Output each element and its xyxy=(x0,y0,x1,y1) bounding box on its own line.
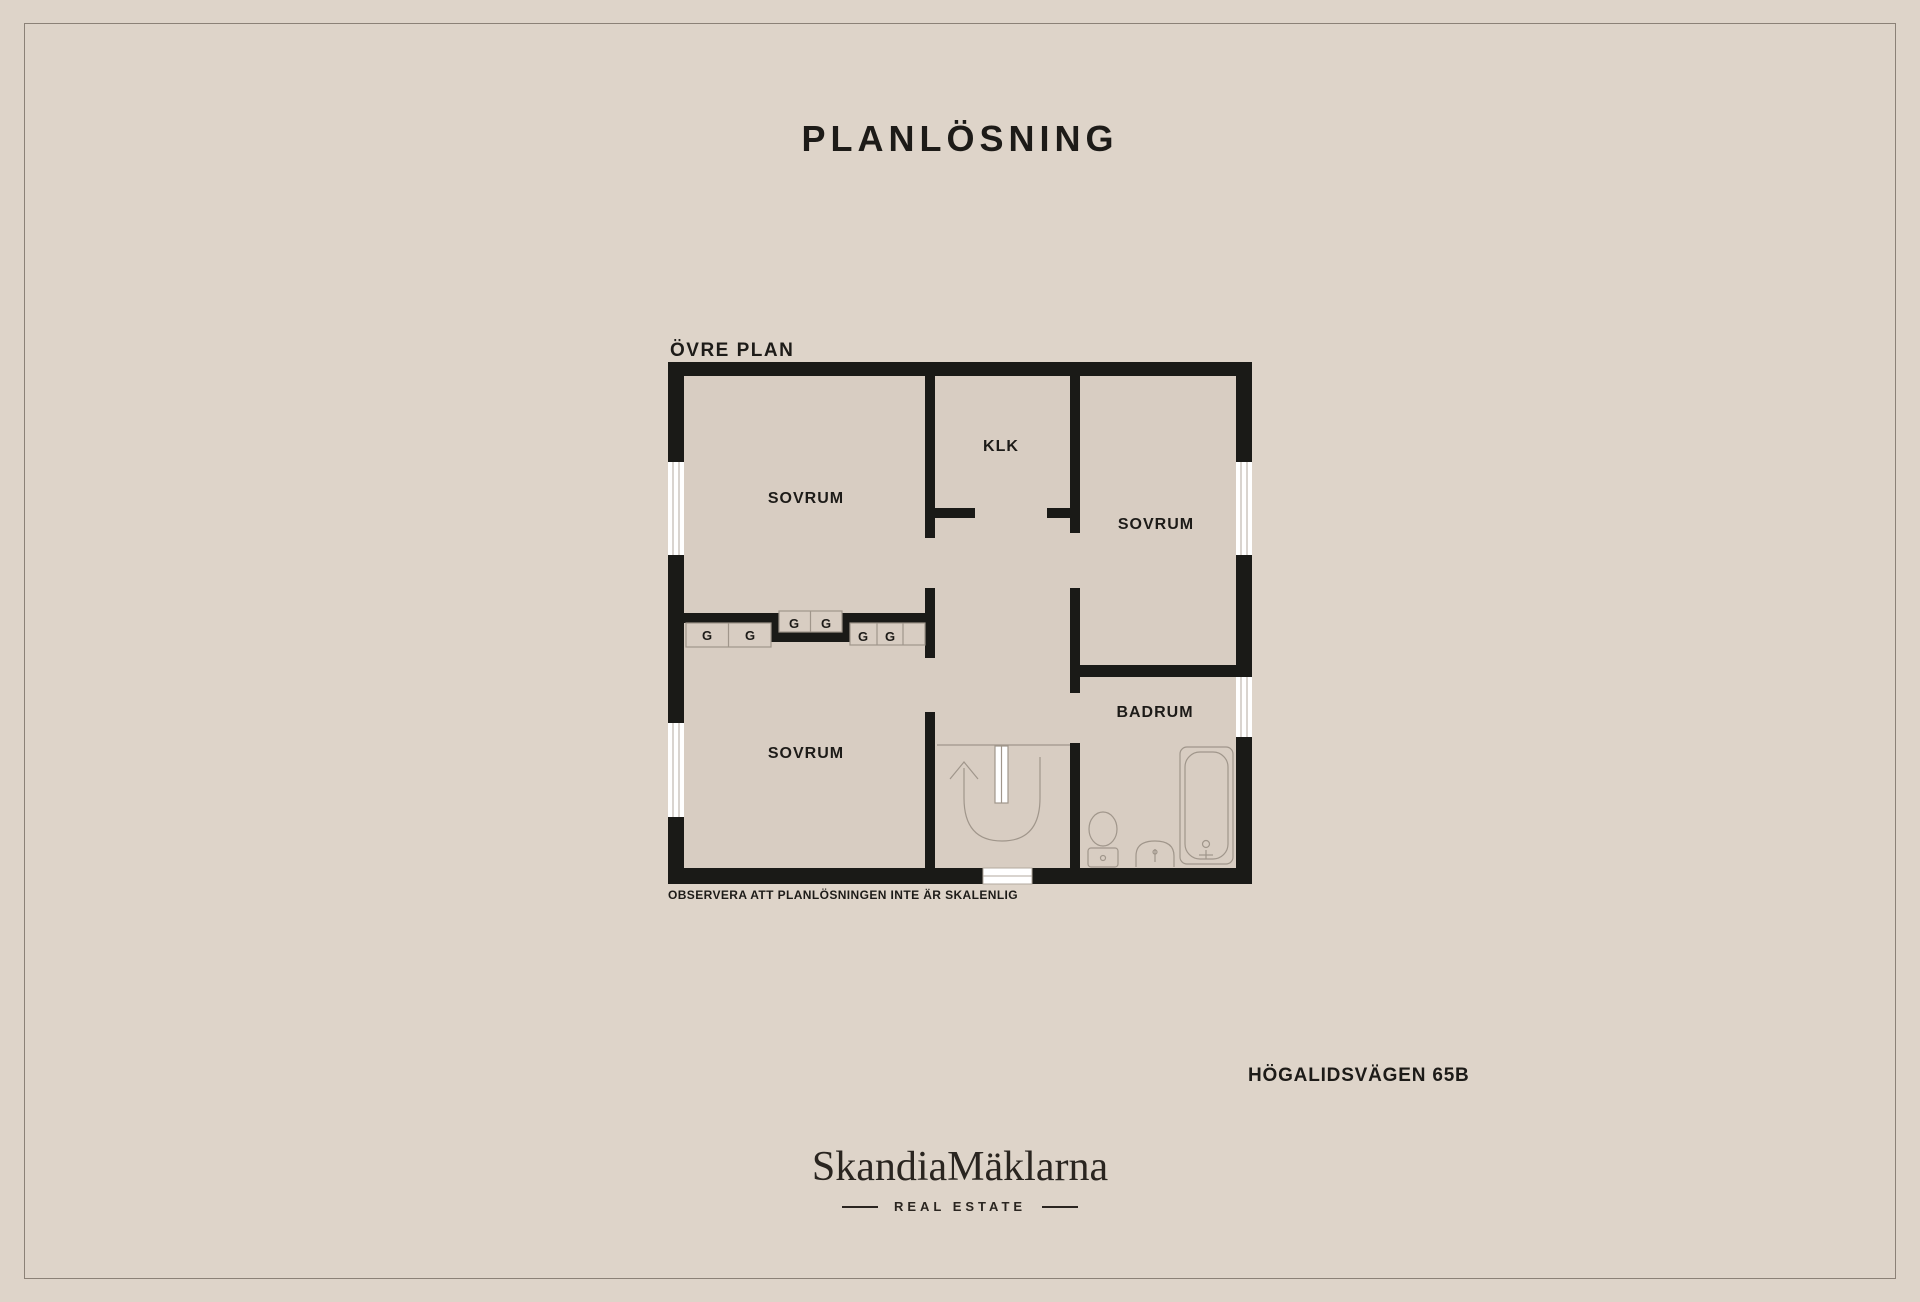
wardrobe-unit-label: G xyxy=(702,628,712,643)
page-title: PLANLÖSNING xyxy=(0,118,1920,160)
wardrobe-unit-label: G xyxy=(821,616,831,631)
wardrobe-unit-label: G xyxy=(885,629,895,644)
tagline-text: REAL ESTATE xyxy=(894,1199,1026,1214)
wardrobe-unit-label: G xyxy=(789,616,799,631)
window-left-lower xyxy=(668,723,684,817)
property-address: HÖGALIDSVÄGEN 65B xyxy=(1248,1065,1470,1087)
window-bottom xyxy=(983,868,1032,884)
tagline-right-dash xyxy=(1042,1206,1078,1208)
room-label-closet: KLK xyxy=(983,438,1019,455)
room-label-bedroom-top-left: SOVRUM xyxy=(768,490,844,507)
scale-disclaimer: OBSERVERA ATT PLANLÖSNINGEN INTE ÄR SKAL… xyxy=(668,888,1018,902)
wardrobe-unit-label: G xyxy=(745,628,755,643)
room-label-bathroom: BADRUM xyxy=(1116,704,1193,721)
floorplan-drawing: G G G G G G xyxy=(640,340,1280,900)
window-right-lower xyxy=(1236,677,1252,737)
floorplan-page: PLANLÖSNING ÖVRE PLAN xyxy=(0,0,1920,1302)
brand-logo: SkandiaMäklarna xyxy=(0,1143,1920,1191)
brand-tagline: REAL ESTATE xyxy=(0,1199,1920,1214)
room-label-bedroom-bottom-left: SOVRUM xyxy=(768,745,844,762)
window-right-upper xyxy=(1236,462,1252,555)
room-label-bedroom-right: SOVRUM xyxy=(1118,516,1194,533)
window-left-upper xyxy=(668,462,684,555)
wardrobe-unit-label: G xyxy=(858,629,868,644)
tagline-left-dash xyxy=(842,1206,878,1208)
